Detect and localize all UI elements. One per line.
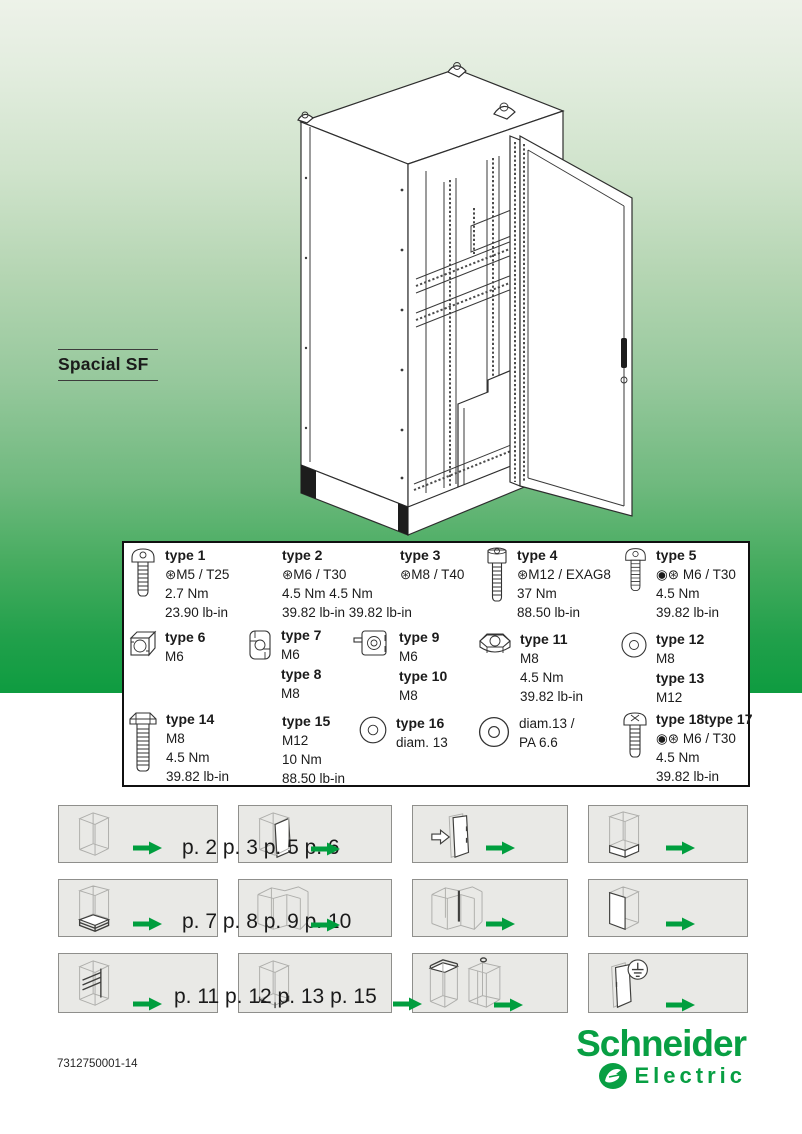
bayed-cabinets-joining-sketch [425, 883, 487, 937]
product-title-block: Spacial SF [58, 349, 158, 381]
cage-nut-icon [126, 628, 158, 660]
document-number: 7312750001-14 [57, 1058, 138, 1070]
hex-bolt-icon [127, 710, 159, 774]
washer-icon [357, 714, 389, 746]
door-grounding-sketch [601, 957, 661, 1013]
logo-electric-text: Electric [635, 1063, 747, 1089]
arrow-right-icon [486, 841, 516, 855]
fastener-cell-type-11: type 11 M8 4.5 Nm 39.82 lb-in [477, 630, 583, 706]
schneider-e-icon [597, 1060, 629, 1092]
arrow-right-icon [393, 997, 423, 1011]
arrow-right-icon [666, 917, 696, 931]
instruction-panel [412, 953, 568, 1013]
divider [58, 349, 158, 350]
fastener-cell-pa-washer: diam.13 / PA 6.6 [476, 714, 575, 752]
pozi-torx-screw-icon [621, 710, 649, 760]
fastener-cell-type-18-17: type 18type 17 ◉⊛ M6 / T30 4.5 Nm 39.82 … [621, 710, 753, 786]
cabinet-base-plates-sketch [71, 883, 123, 937]
fastener-cell-type-4: type 4 ⊛M12 / EXAG8 37 Nm 88.50 lb-in [484, 546, 611, 622]
page-references-row-3: p. 11 p. 12 p. 13 p. 15 [174, 985, 377, 1009]
hex-nut-icon [477, 630, 513, 658]
fastener-cell-type-1: type 1 ⊛M5 / T25 2.7 Nm 23.90 lb-in [128, 546, 229, 622]
fastener-cell-type-3: type 3 ⊛M8 / T40 [400, 546, 464, 584]
fastener-cell-type-15: type 15 M12 10 Nm 88.50 lb-in [282, 712, 345, 788]
washer-icon [476, 714, 512, 750]
arrow-right-icon [133, 997, 163, 1011]
fastener-cell-type-12-13: type 12 M8 type 13 M12 [619, 630, 704, 707]
document-page: Spacial SF type 1 ⊛M5 / T25 2.7 Nm 23.90… [0, 0, 802, 1134]
arrow-right-icon [311, 842, 341, 856]
arrow-right-icon [494, 998, 524, 1012]
cabinet-side-panel-sketch [601, 883, 653, 937]
fastener-cell-type-16: type 16 diam. 13 [357, 714, 448, 752]
clip-nut-icon [246, 626, 274, 664]
fastener-cell-type-6: type 6 M6 [126, 628, 205, 666]
door-handle-icon [621, 338, 627, 368]
door-mounting-sketch [425, 809, 485, 863]
arrow-right-icon [311, 918, 341, 932]
fastener-cell-type-2: type 2 ⊛M6 / T30 4.5 Nm 4.5 Nm 39.82 lb-… [282, 546, 412, 622]
fastener-cell-type-9-10: type 9 M6 type 10 M8 [352, 628, 447, 705]
cabinet-plinth-sketch [601, 809, 653, 863]
fastener-cell-type-5: type 5 ◉⊛ M6 / T30 4.5 Nm 39.82 lb-in [622, 546, 736, 622]
arrow-right-icon [486, 917, 516, 931]
cabinet-interior-rails-sketch [71, 957, 123, 1013]
frame-cabinet-sketch [71, 809, 121, 863]
enclosure-illustration [288, 58, 654, 536]
fastener-title: type 1 [165, 546, 229, 565]
arrow-right-icon [133, 917, 163, 931]
logo-schneider-text: Schneider [556, 1026, 746, 1062]
socket-head-screw-icon [484, 546, 510, 604]
speed-clip-nut-icon [352, 628, 392, 658]
schneider-electric-logo: Schneider Electric [556, 1026, 746, 1092]
pan-head-torx-screw-icon [128, 546, 158, 600]
pan-head-torx-screw-icon [622, 546, 649, 594]
arrow-right-icon [666, 998, 696, 1012]
divider [58, 380, 158, 381]
page-title: Spacial SF [58, 354, 158, 375]
washer-icon [619, 630, 649, 660]
fastener-cell-type-14: type 14 M8 4.5 Nm 39.82 lb-in [127, 710, 229, 786]
fastener-cell-type-7-8: type 7 M6 type 8 M8 [246, 626, 321, 703]
arrow-right-icon [666, 841, 696, 855]
arrow-right-icon [133, 841, 163, 855]
